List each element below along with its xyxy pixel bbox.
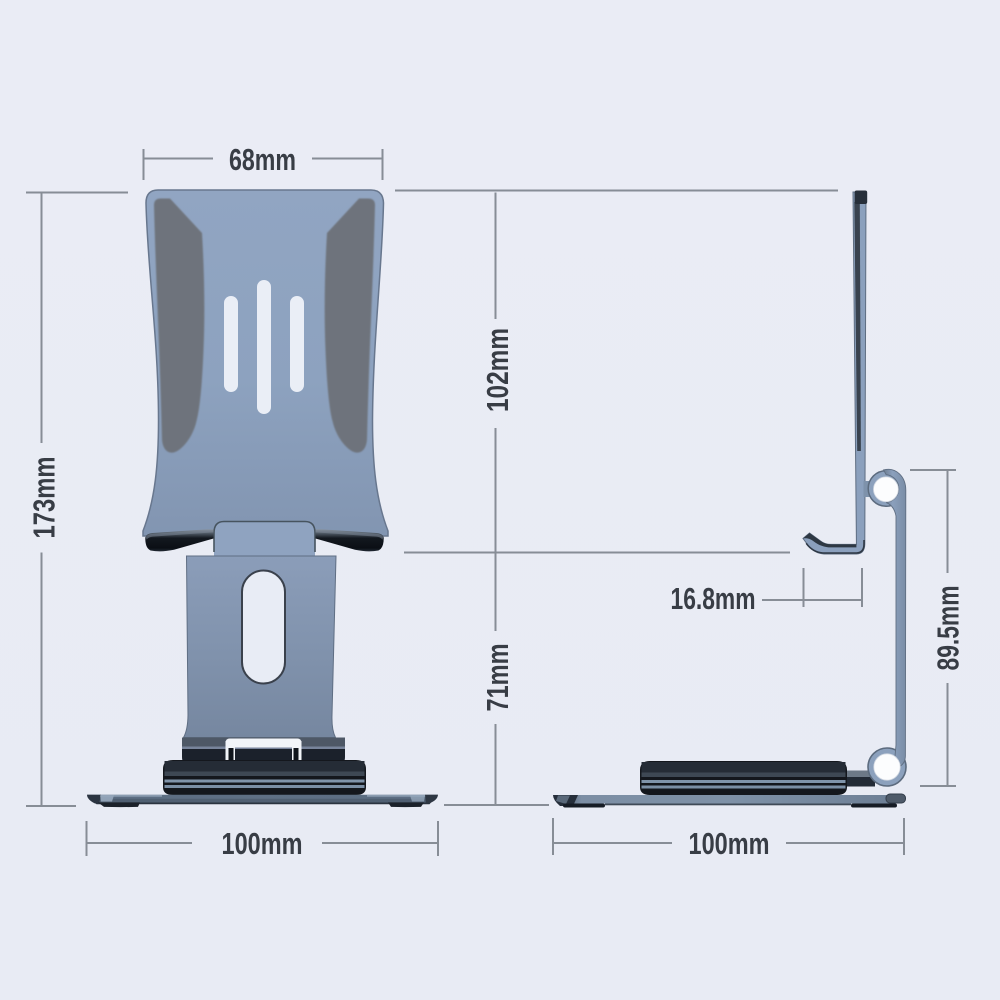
svg-text:102mm: 102mm	[480, 328, 515, 412]
svg-text:16.8mm: 16.8mm	[671, 581, 756, 616]
svg-text:71mm: 71mm	[480, 644, 515, 712]
svg-text:68mm: 68mm	[229, 142, 296, 177]
svg-text:173mm: 173mm	[27, 457, 62, 539]
svg-text:100mm: 100mm	[689, 826, 770, 861]
svg-text:100mm: 100mm	[222, 826, 303, 861]
svg-text:89.5mm: 89.5mm	[931, 586, 966, 671]
